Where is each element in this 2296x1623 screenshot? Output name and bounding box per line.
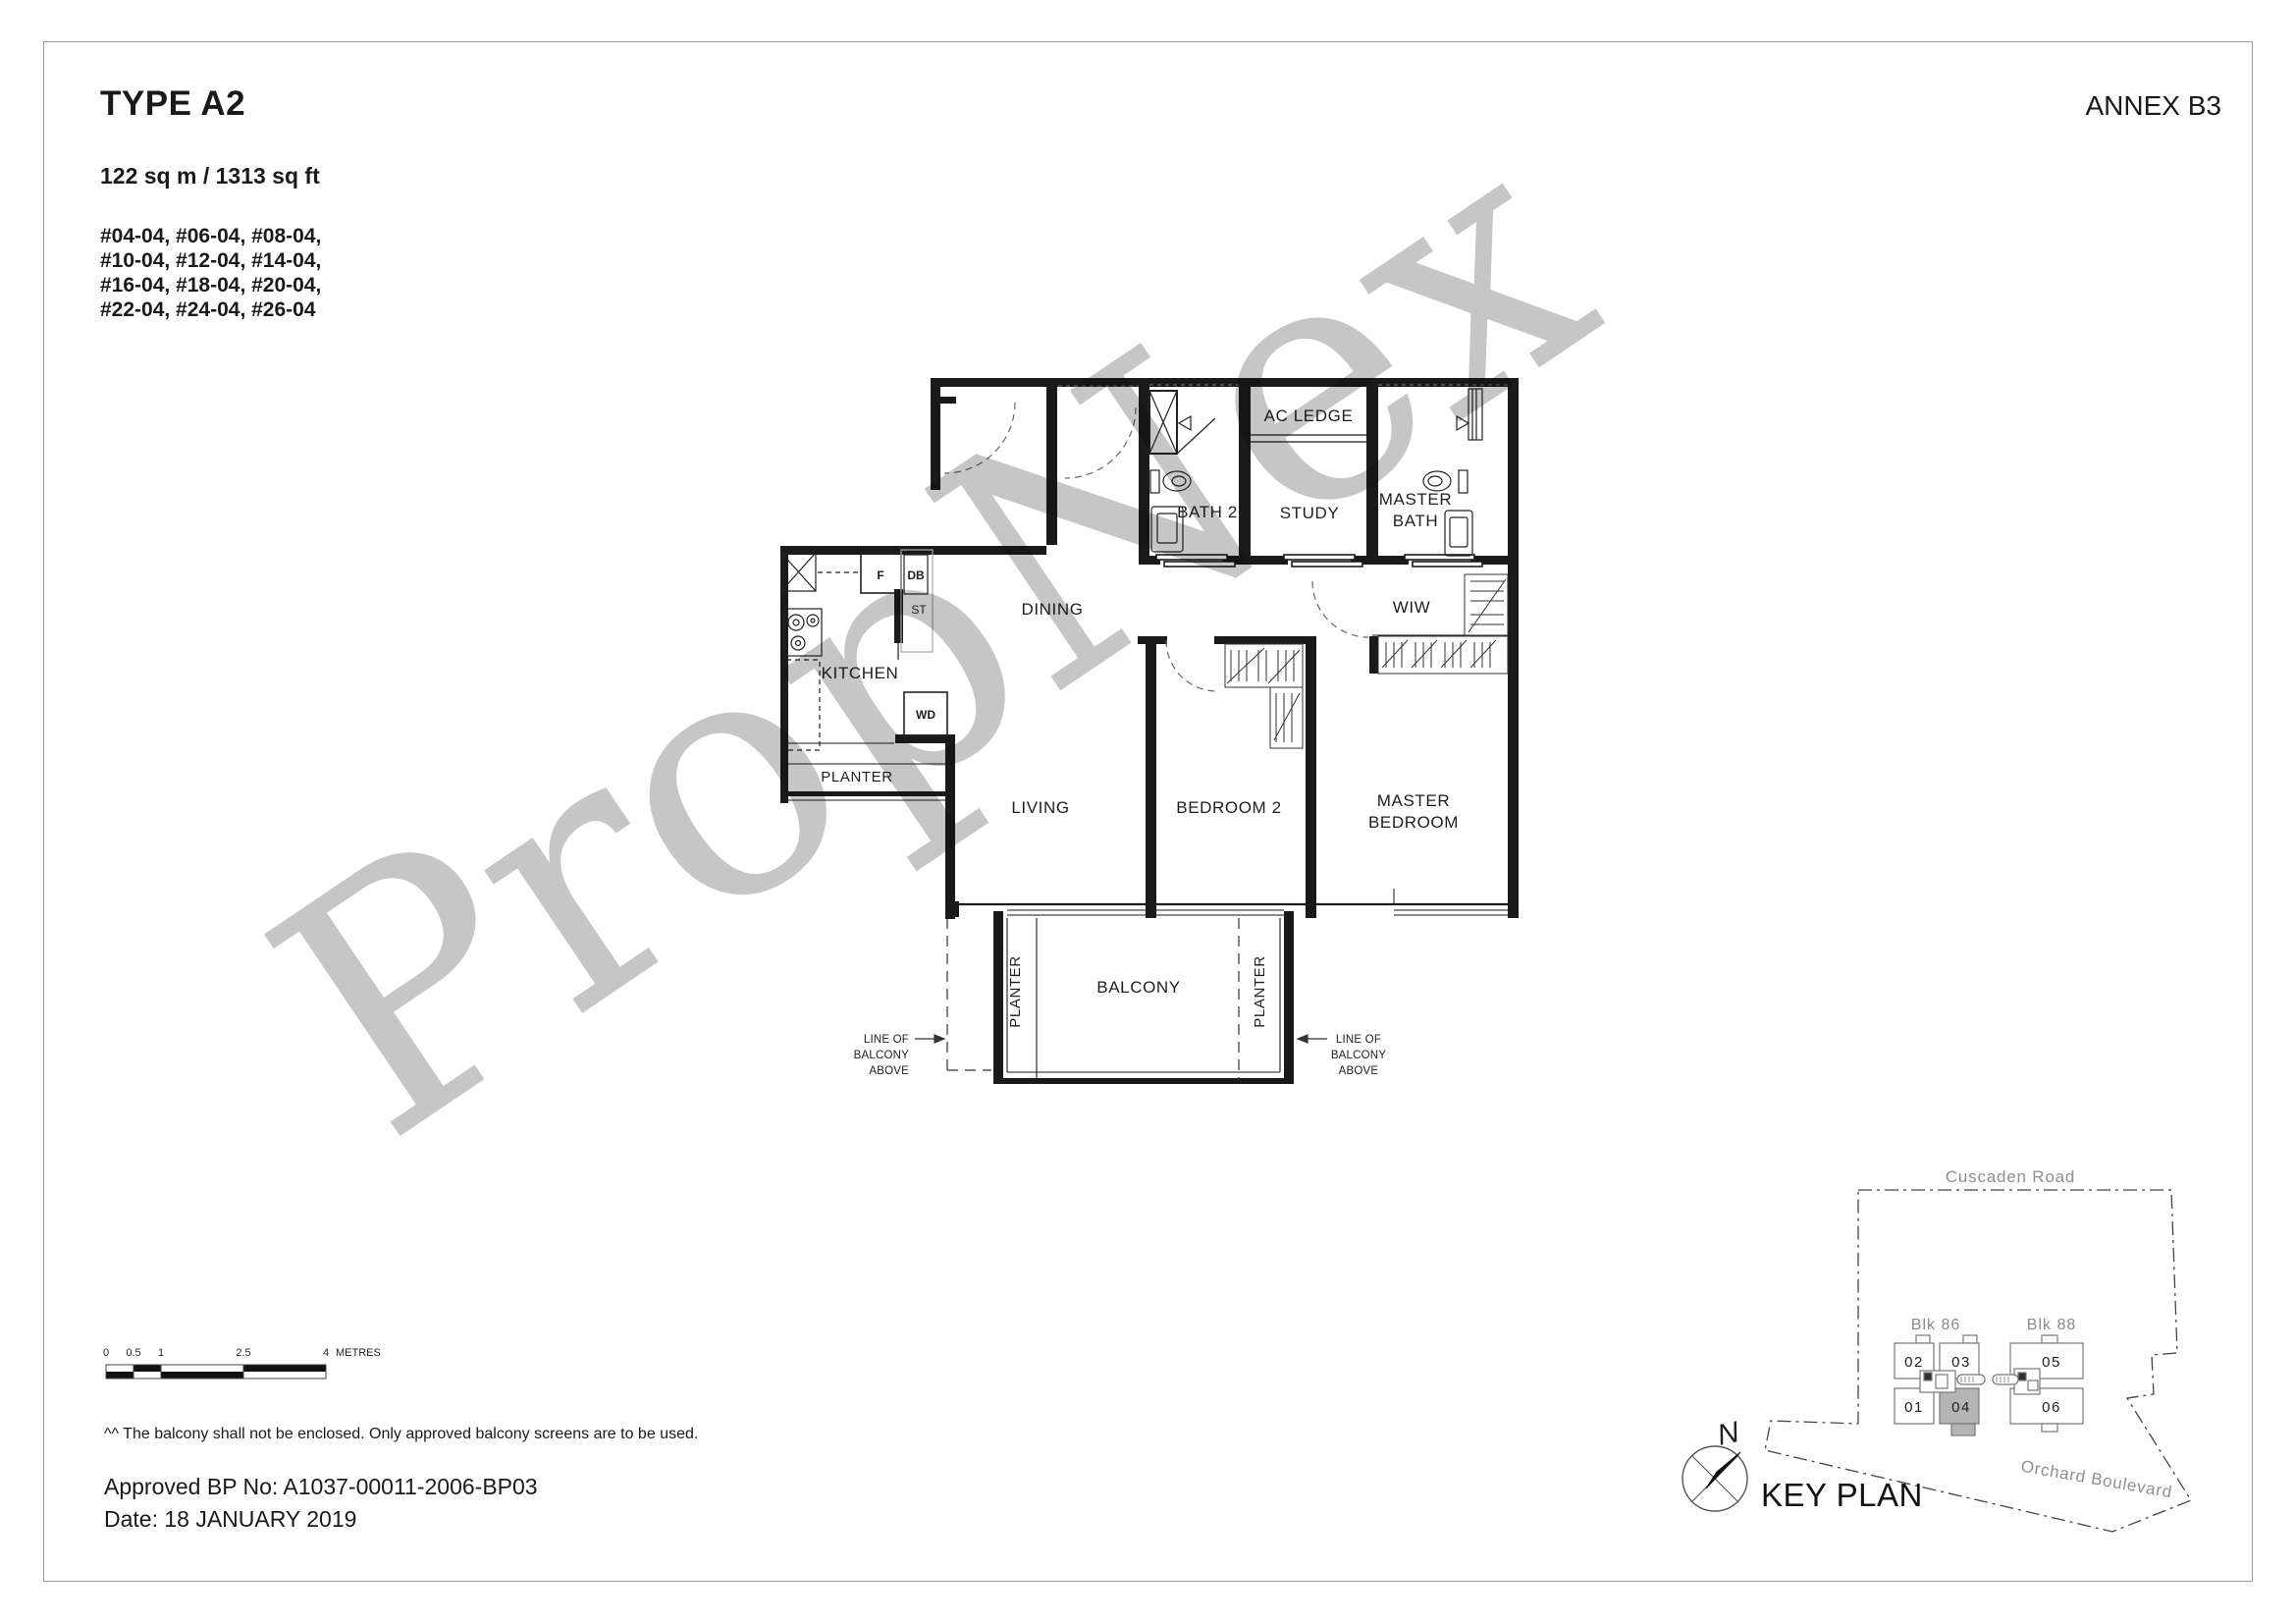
keyplan-unit-02: 02 — [1904, 1354, 1924, 1371]
room-label-master-bath: BATH — [1393, 512, 1438, 530]
keyplan-road-bottom: Orchard Boulevard — [2019, 1457, 2173, 1502]
room-label-dining: DINING — [1021, 600, 1083, 619]
room-label-planter-right: PLANTER — [1252, 955, 1268, 1027]
room-label-wiw: WIW — [1393, 598, 1431, 617]
keyplan-unit-03: 03 — [1951, 1354, 1971, 1371]
room-label-master-bath: MASTER — [1379, 490, 1452, 509]
fixture-label-fridge: F — [877, 568, 883, 582]
scale-tick: 2.5 — [236, 1347, 250, 1359]
sliding-doors — [1156, 555, 1482, 567]
approval-date: Date: 18 JANUARY 2019 — [104, 1503, 538, 1536]
fixture-labels: F DB ST WD — [877, 568, 935, 722]
keyplan-blk88 — [1993, 1335, 2083, 1432]
annotation-arrows — [915, 1035, 1327, 1043]
room-label-master-bedroom: MASTER — [1377, 791, 1450, 810]
annotation-line-of-balcony-right: BALCONY — [1331, 1050, 1386, 1061]
keyplan-unit-04: 04 — [1951, 1399, 1971, 1416]
keyplan-blk88-label: Blk 88 — [2027, 1317, 2076, 1333]
keyplan-unit-06: 06 — [2042, 1399, 2061, 1416]
keyplan-blk86-label: Blk 86 — [1911, 1317, 1960, 1333]
room-label-balcony: BALCONY — [1096, 978, 1180, 997]
room-label-planter-left: PLANTER — [1007, 955, 1024, 1027]
scale-tick: 0 — [103, 1347, 109, 1359]
floorplan-page: { "page": { "title": "TYPE A2", "annex":… — [0, 0, 2296, 1623]
north-compass: N — [1682, 1416, 1747, 1511]
annotation-line-of-balcony-left: LINE OF — [864, 1034, 909, 1046]
room-label-master-bedroom: BEDROOM — [1368, 813, 1459, 832]
room-label-ac-ledge: AC LEDGE — [1264, 406, 1354, 425]
balcony-above-lines — [947, 918, 1239, 1078]
room-label-kitchen: KITCHEN — [822, 664, 899, 682]
scale-tick: 4 — [323, 1347, 329, 1359]
room-label-study: STUDY — [1280, 504, 1340, 522]
balcony-note: ^^ The balcony shall not be enclosed. On… — [104, 1426, 698, 1443]
scale-unit: METRES — [336, 1347, 381, 1359]
scale-bar: 0 0.5 1 2.5 4 METRES — [103, 1347, 381, 1379]
keyplan-road-top: Cuscaden Road — [1946, 1167, 2075, 1186]
annotation-line-of-balcony-left: BALCONY — [854, 1050, 909, 1061]
keyplan-unit-01: 01 — [1904, 1399, 1924, 1416]
annotation-line-of-balcony-right: ABOVE — [1339, 1065, 1379, 1077]
scale-tick: 0.5 — [126, 1347, 140, 1359]
fixture-label-db: DB — [907, 568, 925, 582]
approval-bp-number: Approved BP No: A1037-00011-2006-BP03 — [104, 1471, 538, 1503]
keyplan: Cuscaden Road Orchard Boulevard Blk 86 0… — [1682, 1167, 2191, 1532]
annotation-line-of-balcony-left: ABOVE — [869, 1065, 909, 1077]
room-label-bedroom2: BEDROOM 2 — [1176, 798, 1281, 817]
room-label-planter-kitchen: PLANTER — [821, 769, 892, 785]
floorplan-drawing: AC LEDGE BATH 2 STUDY MASTER BATH DINING… — [0, 0, 2296, 1623]
scale-tick: 1 — [158, 1347, 164, 1359]
keyplan-title: KEY PLAN — [1761, 1477, 1923, 1513]
approval-block: Approved BP No: A1037-00011-2006-BP03 Da… — [104, 1471, 538, 1536]
annotation-line-of-balcony-right: LINE OF — [1336, 1034, 1381, 1046]
room-label-living: LIVING — [1011, 798, 1069, 817]
fixture-label-wd: WD — [916, 708, 935, 722]
keyplan-unit-05: 05 — [2042, 1354, 2061, 1371]
keyplan-blk86 — [1895, 1335, 1985, 1435]
fixture-label-store: ST — [911, 603, 927, 617]
room-label-bath2: BATH 2 — [1177, 503, 1238, 521]
wardrobes — [1225, 574, 1508, 748]
